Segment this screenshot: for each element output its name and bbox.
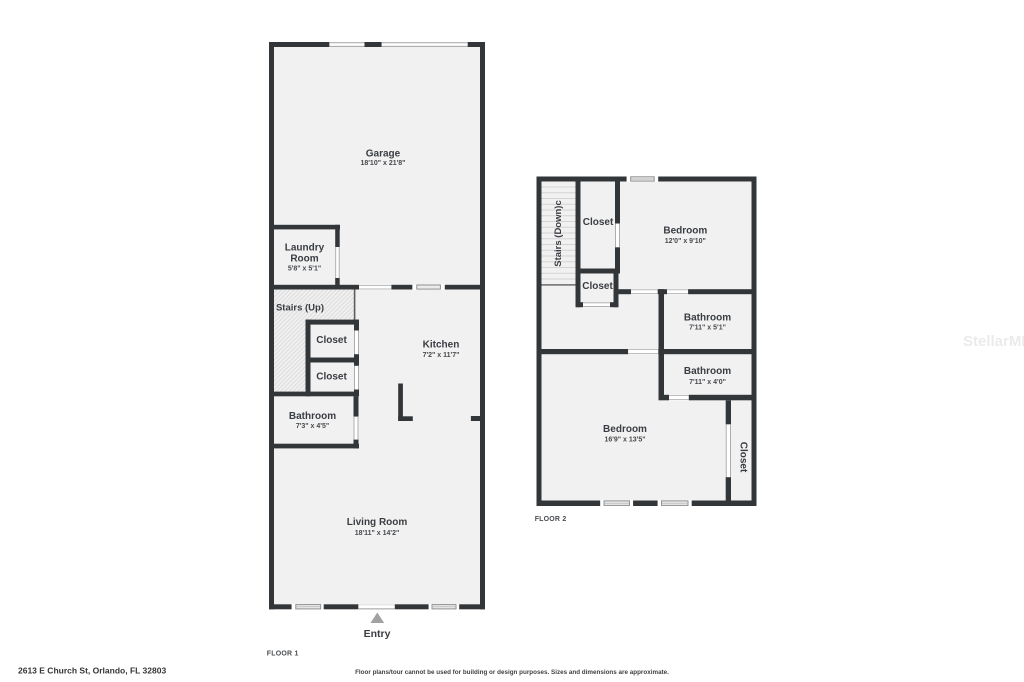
svg-text:18'11" x 14'2": 18'11" x 14'2" [355,530,400,537]
svg-text:Closet: Closet [583,217,614,228]
svg-text:5'8" x 5'1": 5'8" x 5'1" [288,266,321,273]
svg-text:Laundry: Laundry [285,243,325,254]
svg-text:Kitchen: Kitchen [423,340,460,351]
svg-text:Stairs (Up): Stairs (Up) [276,303,324,314]
svg-text:FLOOR 2: FLOOR 2 [535,516,567,523]
svg-text:Bathroom: Bathroom [684,366,731,377]
svg-text:Entry: Entry [364,628,391,640]
svg-text:Room: Room [290,254,318,265]
svg-text:Closet: Closet [316,372,347,383]
svg-text:Bedroom: Bedroom [603,424,647,435]
svg-text:StellarMLS: StellarMLS [963,333,1024,350]
svg-text:Bathroom: Bathroom [684,313,731,324]
svg-text:FLOOR 1: FLOOR 1 [267,651,299,658]
svg-text:Closet: Closet [316,335,347,346]
svg-text:Bathroom: Bathroom [289,411,336,422]
svg-text:Living Room: Living Room [347,517,408,528]
svg-text:Bedroom: Bedroom [663,226,707,237]
svg-text:Stairs (Down)c: Stairs (Down)c [553,200,564,267]
svg-text:Closet: Closet [738,442,749,473]
svg-text:7'11" x 4'0": 7'11" x 4'0" [689,379,726,386]
svg-text:16'9" x 13'5": 16'9" x 13'5" [604,437,645,444]
svg-text:Garage: Garage [366,149,401,160]
svg-text:12'0" x 9'10": 12'0" x 9'10" [665,238,706,245]
svg-text:Floor plans/tour cannot be use: Floor plans/tour cannot be used for buil… [355,669,669,676]
svg-text:2613 E Church St, Orlando, FL: 2613 E Church St, Orlando, FL 32803 [18,666,166,676]
svg-text:18'10" x 21'8": 18'10" x 21'8" [360,160,405,167]
svg-text:7'2" x 11'7": 7'2" x 11'7" [423,352,460,359]
svg-text:7'11" x 5'1": 7'11" x 5'1" [689,325,726,332]
svg-text:7'3" x 4'5": 7'3" x 4'5" [296,423,329,430]
svg-text:Closet: Closet [582,281,613,292]
